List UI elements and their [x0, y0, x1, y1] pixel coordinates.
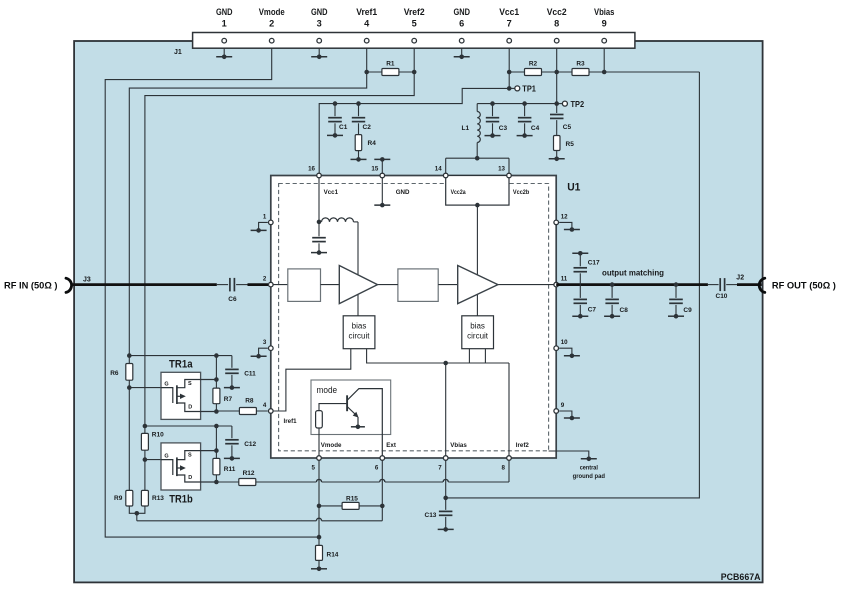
- svg-text:Vbias: Vbias: [594, 7, 615, 17]
- svg-text:12: 12: [561, 213, 568, 220]
- svg-text:J3: J3: [83, 276, 91, 283]
- svg-text:PCB667A: PCB667A: [721, 572, 761, 582]
- svg-text:Vcc2: Vcc2: [547, 7, 567, 17]
- svg-text:R4: R4: [368, 140, 377, 147]
- svg-text:5: 5: [412, 18, 417, 28]
- svg-text:L1: L1: [462, 125, 470, 132]
- svg-text:C3: C3: [499, 125, 508, 132]
- svg-text:circuit: circuit: [467, 332, 489, 341]
- svg-text:R6: R6: [110, 370, 119, 377]
- svg-text:ground pad: ground pad: [573, 473, 606, 480]
- svg-text:TP2: TP2: [571, 100, 585, 109]
- svg-text:6: 6: [459, 18, 464, 28]
- svg-text:4: 4: [364, 18, 370, 28]
- svg-text:RF IN (50Ω ): RF IN (50Ω ): [4, 279, 58, 290]
- svg-text:Vref2: Vref2: [404, 7, 425, 17]
- svg-text:circuit: circuit: [349, 332, 371, 341]
- svg-text:9: 9: [602, 18, 607, 28]
- svg-text:S: S: [188, 381, 192, 387]
- svg-text:1: 1: [222, 18, 227, 28]
- svg-text:R8: R8: [245, 397, 254, 404]
- svg-text:13: 13: [498, 166, 505, 173]
- svg-text:central: central: [580, 464, 598, 471]
- svg-text:7: 7: [507, 18, 512, 28]
- svg-text:R9: R9: [114, 495, 123, 502]
- svg-text:GND: GND: [453, 7, 470, 17]
- svg-text:C9: C9: [683, 307, 692, 314]
- svg-text:R15: R15: [346, 495, 358, 502]
- svg-text:TP1: TP1: [522, 85, 536, 94]
- svg-text:14: 14: [435, 166, 442, 173]
- svg-text:16: 16: [308, 166, 315, 173]
- svg-text:Vcc2b: Vcc2b: [513, 189, 530, 196]
- svg-text:bias: bias: [352, 322, 367, 331]
- svg-text:Ext: Ext: [386, 442, 396, 449]
- svg-text:C13: C13: [425, 512, 437, 519]
- svg-text:J1: J1: [174, 49, 182, 56]
- svg-text:Iref2: Iref2: [516, 442, 530, 449]
- svg-text:8: 8: [502, 464, 506, 471]
- svg-text:Vcc1: Vcc1: [324, 189, 339, 196]
- svg-text:C11: C11: [244, 370, 256, 377]
- svg-text:9: 9: [561, 402, 565, 409]
- svg-text:2: 2: [263, 276, 267, 283]
- svg-text:C7: C7: [588, 306, 597, 313]
- svg-text:1: 1: [263, 213, 267, 220]
- svg-text:R2: R2: [529, 60, 538, 67]
- svg-text:4: 4: [263, 402, 267, 409]
- svg-text:R10: R10: [152, 432, 164, 439]
- svg-text:R13: R13: [152, 495, 164, 502]
- svg-text:5: 5: [312, 464, 316, 471]
- svg-text:G: G: [164, 454, 168, 460]
- svg-text:U1: U1: [567, 181, 580, 193]
- svg-text:RF OUT (50Ω ): RF OUT (50Ω ): [772, 279, 836, 290]
- svg-text:Vcc2a: Vcc2a: [451, 189, 466, 196]
- svg-text:J2: J2: [736, 275, 744, 282]
- svg-text:C17: C17: [588, 260, 600, 267]
- svg-text:6: 6: [375, 464, 379, 471]
- svg-text:G: G: [164, 382, 168, 388]
- svg-text:C12: C12: [244, 441, 256, 448]
- svg-text:11: 11: [561, 276, 568, 283]
- svg-text:3: 3: [317, 18, 322, 28]
- svg-text:C2: C2: [363, 124, 372, 131]
- svg-text:Vref1: Vref1: [356, 7, 377, 17]
- svg-text:R3: R3: [576, 60, 585, 67]
- svg-text:3: 3: [263, 339, 267, 346]
- svg-text:GND: GND: [311, 7, 328, 17]
- svg-text:R5: R5: [566, 141, 575, 148]
- svg-text:D: D: [188, 475, 192, 481]
- svg-text:7: 7: [438, 464, 442, 471]
- svg-text:R12: R12: [243, 470, 255, 477]
- svg-text:GND: GND: [216, 7, 233, 17]
- svg-text:C4: C4: [531, 125, 540, 132]
- svg-text:R7: R7: [224, 396, 233, 403]
- svg-text:TR1b: TR1b: [169, 493, 193, 505]
- svg-text:10: 10: [561, 339, 568, 346]
- svg-text:Vmode: Vmode: [321, 442, 342, 449]
- svg-text:output matching: output matching: [602, 268, 664, 278]
- svg-text:C8: C8: [620, 307, 629, 314]
- svg-text:TR1a: TR1a: [169, 359, 193, 371]
- svg-text:Vcc1: Vcc1: [499, 7, 519, 17]
- svg-text:D: D: [188, 404, 192, 410]
- svg-text:GND: GND: [396, 189, 410, 196]
- svg-text:Iref1: Iref1: [284, 418, 298, 425]
- svg-text:C5: C5: [563, 124, 572, 131]
- svg-text:bias: bias: [470, 322, 485, 331]
- svg-text:mode: mode: [317, 385, 338, 395]
- svg-text:S: S: [188, 452, 192, 458]
- svg-text:C10: C10: [716, 293, 728, 300]
- svg-text:8: 8: [554, 18, 559, 28]
- svg-text:R11: R11: [224, 466, 236, 473]
- svg-text:C6: C6: [228, 296, 237, 303]
- svg-text:Vbias: Vbias: [450, 442, 467, 449]
- svg-text:R14: R14: [327, 551, 339, 558]
- svg-text:R1: R1: [386, 60, 395, 67]
- svg-text:C1: C1: [339, 124, 348, 131]
- svg-text:2: 2: [269, 18, 274, 28]
- svg-text:Vmode: Vmode: [259, 7, 285, 17]
- svg-text:15: 15: [371, 166, 378, 173]
